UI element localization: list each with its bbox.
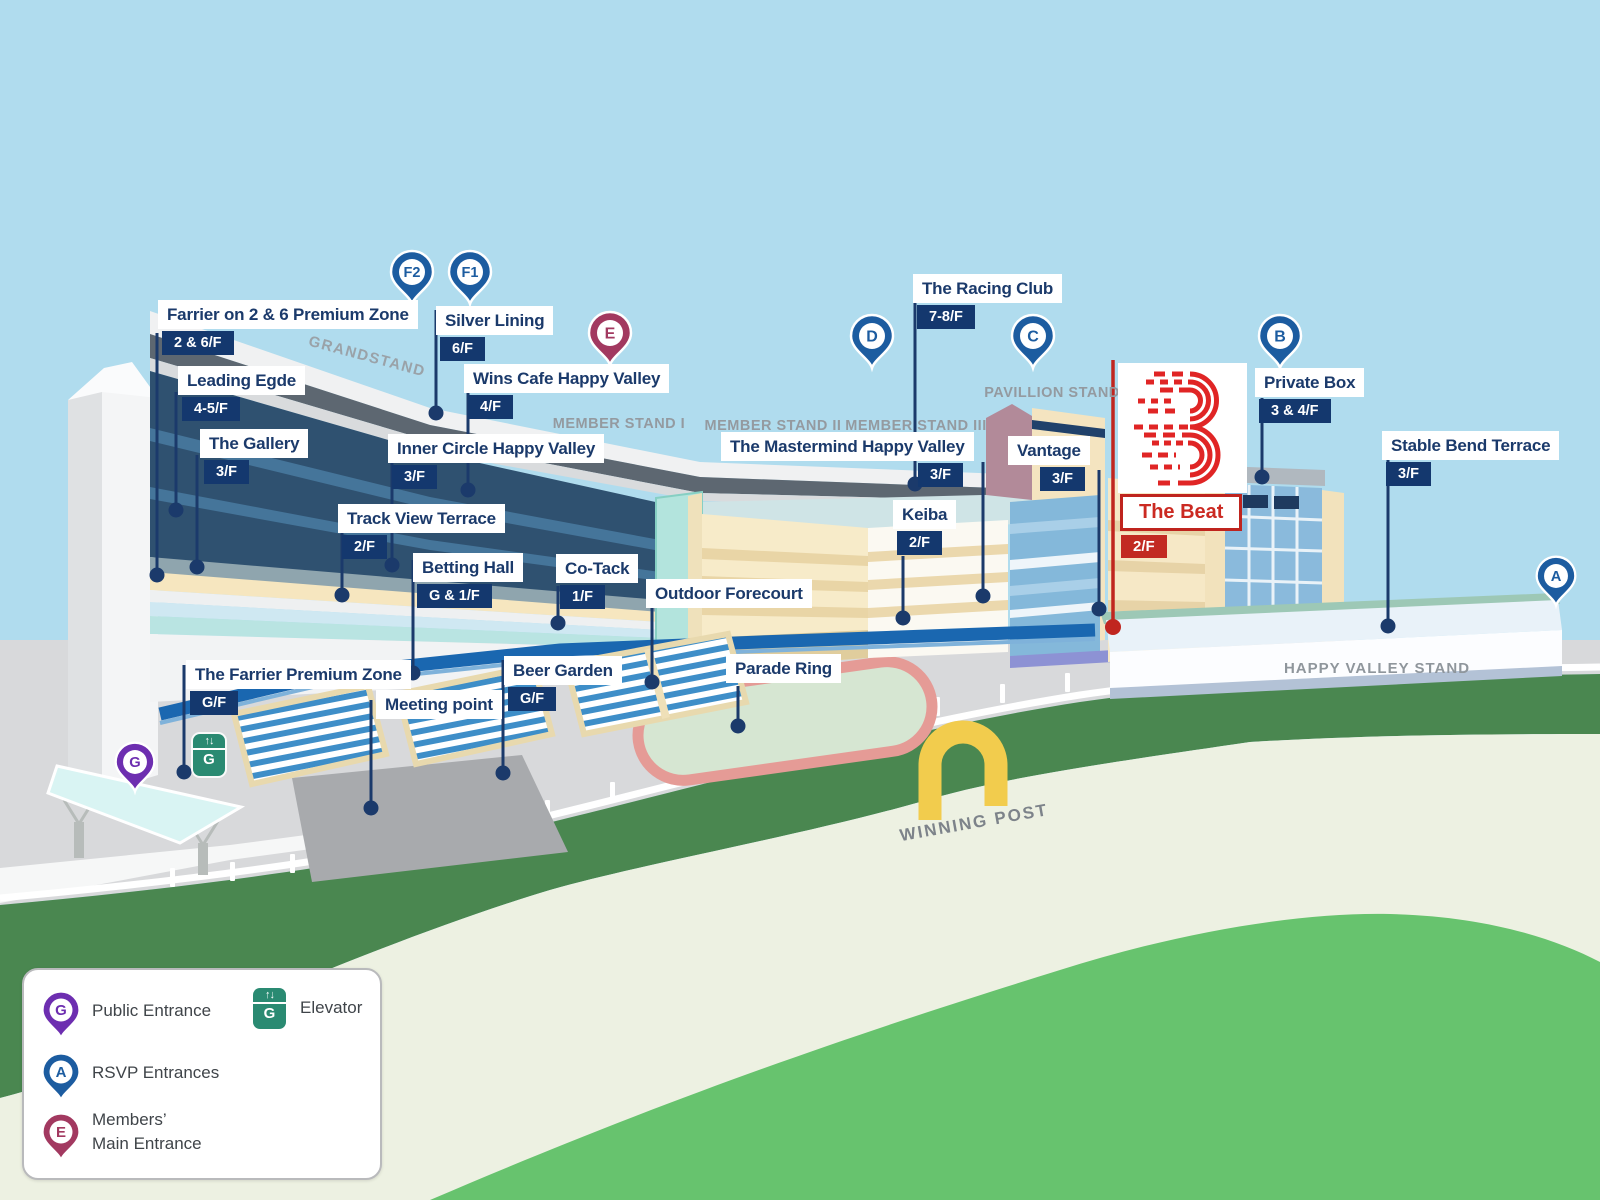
- venue-floor: 6/F: [440, 337, 485, 361]
- venue-label-private-box: Private Box 3 & 4/F: [1255, 368, 1364, 423]
- venue-label-farrier-on-2-6-premium-zone: Farrier on 2 & 6 Premium Zone 2 & 6/F: [158, 300, 418, 355]
- canopy-post: [198, 843, 208, 875]
- legend-members-main-entrance-pin: E: [37, 1110, 85, 1170]
- venue-name: Private Box: [1255, 368, 1364, 397]
- venue-label-betting-hall: Betting Hall G & 1/F: [413, 553, 523, 608]
- elevator-floor-letter: G: [264, 1004, 276, 1024]
- venue-floor: 4-5/F: [182, 397, 240, 421]
- beat-leader-dot: [1105, 619, 1121, 635]
- canopy-post: [74, 822, 84, 858]
- venue-label-the-mastermind-happy-valley: The Mastermind Happy Valley 3/F: [721, 432, 974, 487]
- elevator-arrows-icon: ↑↓: [265, 988, 274, 1002]
- venue-label-silver-lining: Silver Lining 6/F: [436, 306, 553, 361]
- window: [1243, 495, 1268, 508]
- racecourse-map: GRANDSTAND MEMBER STAND I MEMBER STAND I…: [0, 0, 1600, 1200]
- legend-public-entrance-label: Public Entrance: [92, 999, 211, 1023]
- venue-label-wins-cafe-happy-valley: Wins Cafe Happy Valley 4/F: [464, 364, 669, 419]
- left-tower-front: [102, 386, 158, 792]
- venue-floor: 2/F: [342, 535, 387, 559]
- legend-public-entrance-pin: G: [37, 988, 85, 1048]
- venue-label-track-view-terrace: Track View Terrace 2/F: [338, 504, 505, 559]
- venue-name: Vantage: [1008, 436, 1090, 465]
- venue-name: Farrier on 2 & 6 Premium Zone: [158, 300, 418, 329]
- the-beat-logo-mark: [1118, 363, 1247, 493]
- legend-elevator-icon: ↑↓ G: [253, 988, 286, 1029]
- venue-floor: 3/F: [204, 460, 249, 484]
- venue-floor: 2 & 6/F: [162, 331, 234, 355]
- venue-label-leading-egde: Leading Egde 4-5/F: [178, 366, 305, 421]
- legend-members-main-entrance-label: Members’ Main Entrance: [92, 1108, 202, 1156]
- venue-name: Inner Circle Happy Valley: [388, 434, 604, 463]
- svg-text:F1: F1: [462, 265, 479, 281]
- svg-text:D: D: [866, 329, 878, 346]
- venue-name: The Racing Club: [913, 274, 1062, 303]
- venue-label-keiba: Keiba 2/F: [893, 500, 956, 555]
- venue-name: Beer Garden: [504, 656, 622, 685]
- venue-floor: 3 & 4/F: [1259, 399, 1331, 423]
- venue-floor: 2/F: [897, 531, 942, 555]
- venue-label-stable-bend-terrace: Stable Bend Terrace 3/F: [1382, 431, 1559, 486]
- venue-name: Parade Ring: [726, 654, 841, 683]
- venue-label-inner-circle-happy-valley: Inner Circle Happy Valley 3/F: [388, 434, 604, 489]
- left-tower-side: [68, 386, 102, 800]
- venue-floor: G/F: [190, 691, 238, 715]
- venue-name: The Gallery: [200, 429, 308, 458]
- venue-floor: 3/F: [1386, 462, 1431, 486]
- venue-label-beer-garden: Beer Garden G/F: [504, 656, 622, 711]
- venue-name: The Mastermind Happy Valley: [721, 432, 974, 461]
- venue-name: Track View Terrace: [338, 504, 505, 533]
- venue-floor: 1/F: [560, 585, 605, 609]
- svg-text:B: B: [1274, 329, 1286, 346]
- venue-floor: 3/F: [918, 463, 963, 487]
- the-beat-logo: [1118, 363, 1247, 493]
- elevator-icon: ↑↓ G: [193, 734, 225, 776]
- venue-name: Meeting point: [376, 690, 502, 719]
- elevator-arrows-icon: ↑↓: [205, 734, 214, 748]
- legend-elevator-label: Elevator: [300, 996, 362, 1020]
- venue-name: Silver Lining: [436, 306, 553, 335]
- venue-floor: G & 1/F: [417, 584, 492, 608]
- svg-text:C: C: [1027, 329, 1039, 346]
- venue-label-outdoor-forecourt: Outdoor Forecourt: [646, 579, 812, 608]
- legend-rsvp-entrances-pin: A: [37, 1050, 85, 1110]
- venue-label-the-racing-club: The Racing Club 7-8/F: [913, 274, 1062, 329]
- venue-name: Outdoor Forecourt: [646, 579, 812, 608]
- venue-label-co-tack: Co-Tack 1/F: [556, 554, 638, 609]
- svg-text:F2: F2: [404, 265, 421, 281]
- venue-label-the-gallery: The Gallery 3/F: [200, 429, 308, 484]
- venue-label-vantage: Vantage 3/F: [1008, 436, 1090, 491]
- venue-name: Keiba: [893, 500, 956, 529]
- venue-name: The Farrier Premium Zone: [186, 660, 411, 689]
- pavillion-stand-text: PAVILLION STAND: [984, 385, 1120, 401]
- svg-text:A: A: [1551, 569, 1562, 585]
- venue-name: Co-Tack: [556, 554, 638, 583]
- legend-rsvp-entrances-label: RSVP Entrances: [92, 1061, 219, 1085]
- venue-floor-the-beat: 2/F: [1121, 535, 1167, 558]
- svg-text:G: G: [129, 755, 140, 771]
- venue-label-the-beat: The Beat: [1120, 494, 1242, 531]
- window: [1274, 496, 1299, 509]
- svg-text:E: E: [605, 326, 616, 343]
- legend-pin-letter: A: [56, 1064, 67, 1081]
- venue-name: Betting Hall: [413, 553, 523, 582]
- venue-floor: 7-8/F: [917, 305, 975, 329]
- venue-floor: 4/F: [468, 395, 513, 419]
- venue-floor: G/F: [508, 687, 556, 711]
- venue-floor: 3/F: [1040, 467, 1085, 491]
- legend-pin-letter: G: [55, 1002, 67, 1019]
- happy-valley-stand-text: HAPPY VALLEY STAND: [1284, 660, 1470, 677]
- venue-label-meeting-point: Meeting point: [376, 690, 502, 719]
- venue-name: Wins Cafe Happy Valley: [464, 364, 669, 393]
- venue-name: Stable Bend Terrace: [1382, 431, 1559, 460]
- elevator-floor-letter: G: [203, 750, 215, 770]
- venue-label-parade-ring: Parade Ring: [726, 654, 841, 683]
- legend-pin-letter: E: [56, 1124, 66, 1141]
- venue-name: Leading Egde: [178, 366, 305, 395]
- venue-floor: 3/F: [392, 465, 437, 489]
